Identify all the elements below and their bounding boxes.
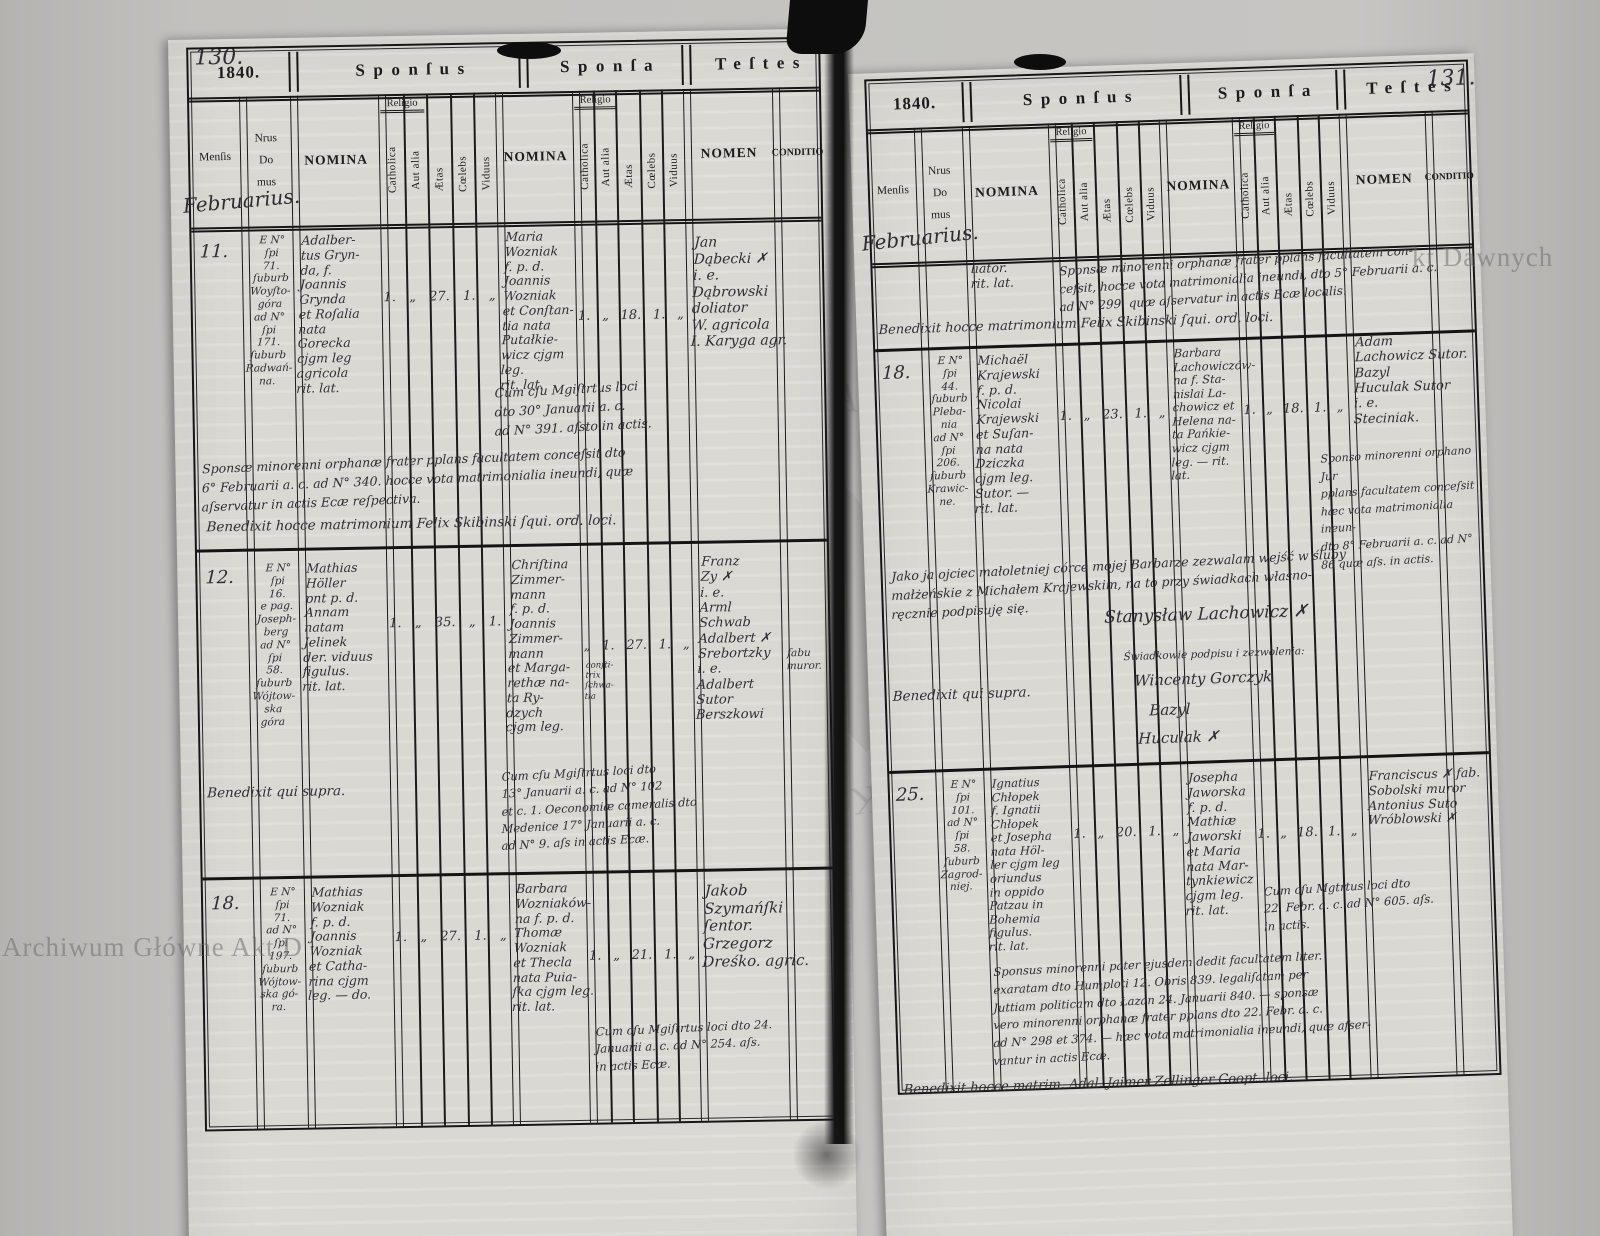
stat-autalia: „	[1266, 402, 1273, 417]
stat-autalia: „	[613, 948, 620, 963]
entry-number: 18.	[211, 893, 240, 915]
house-number: E N° ſpi 71. ſuburb Woyſto- góra ad N° ſ…	[245, 234, 294, 388]
conditio-value: fabu muror.	[786, 647, 827, 673]
sponsus-stats: 1.„27.1.„	[395, 928, 507, 945]
sponsa-name: Josepha Jaworska f. p. d. Mathiæ Jaworsk…	[1185, 769, 1264, 919]
section-sponsus: Sponſus	[967, 71, 1187, 126]
col-do: Do	[259, 150, 273, 172]
col-nomina-sponsus: NOMINA	[292, 94, 380, 225]
magistrate-consent-note: Cum cſu Mgiſtrtus loci dto 13° Januarii …	[502, 755, 762, 855]
stat-viduus: „	[688, 947, 695, 962]
section-testes: Teſtes	[1341, 61, 1476, 113]
benediction-note: Benedixit qui supra.	[207, 779, 438, 803]
stat-coelebs: 1.	[1328, 824, 1341, 839]
stat-autalia: „	[409, 290, 416, 305]
stat-autalia: 1.	[602, 638, 615, 653]
col-catholica-sponsa: Catholica	[1235, 143, 1257, 250]
entry-number: 11.	[199, 241, 228, 263]
section-sponsa: Sponſa	[1185, 66, 1343, 119]
col-nomina-sponsa: NOMINA	[1161, 117, 1236, 253]
col-viduus-sponsus: Viduus	[476, 126, 498, 220]
col-conditio: CONDITIO	[1427, 109, 1472, 244]
col-autalia-sponsus: Aut alia	[404, 118, 427, 222]
col-nrus: Nrus	[928, 161, 951, 184]
sponsus-name: Ignatius Chłopek f. Ignatii Chłopek et J…	[989, 775, 1072, 954]
stat-viduus: „	[1158, 406, 1165, 421]
col-coelebs-sponsus: Cœlebs	[1118, 156, 1141, 253]
table-body: liator. rit. lat. Sponsæ minorenni orpha…	[872, 243, 1499, 1092]
register-page-right: 131. 1840. Sponſus Sponſa Teſtes	[848, 53, 1514, 1236]
col-coelebs-sponsa: Cœlebs	[1299, 150, 1321, 247]
stat-viduus: „	[683, 637, 690, 652]
stat-aetas: 27.	[626, 638, 647, 653]
stat-coelebs: 1.	[659, 637, 672, 652]
year-label: 1840.	[188, 48, 289, 98]
col-do: Do	[933, 183, 948, 205]
stat-viduus: 1.	[489, 614, 502, 629]
col-mensis: Menſis	[190, 137, 241, 178]
col-viduus-sponsus: Viduus	[1140, 156, 1162, 253]
row-separator	[203, 867, 833, 880]
stat-catholica: 1.	[589, 949, 602, 964]
stat-autalia: „	[420, 930, 427, 945]
testes-names: Adam Lachowicz Sutor. Bazyl Huculak Suto…	[1354, 331, 1476, 427]
col-autalia-sponsa: Aut alia	[595, 114, 616, 218]
benediction-note: Benedixit hocce matrim. Adal. Jaimer Zel…	[904, 1063, 1444, 1100]
col-religio-sponsus: Religio	[380, 98, 424, 114]
sponsus-name: Mathias Höller pnt p. d. Annam natam Jel…	[302, 560, 391, 694]
stat-catholica: 1.	[1073, 827, 1086, 842]
col-coelebs-sponsus: Cœlebs	[452, 127, 475, 221]
magistrate-consent-note: Cum cſu Mgiſtrtus loci dto 30° Januarii …	[495, 372, 735, 441]
entry-number: 25.	[896, 784, 925, 806]
register-scan: ARCHIWUM GŁÓWNE AKT DAWNYCH • ARCHIWUM G…	[0, 0, 1600, 1236]
col-autalia-sponsus: Aut alia	[1073, 148, 1097, 255]
testes-names: Franz Zy ✗ i. e. Arml Schwab Adalbert ✗ …	[696, 553, 790, 723]
witness-signature: Bazyl	[1149, 701, 1190, 720]
spine-top-shadow	[785, 0, 868, 54]
witness-signature: Huculak ✗	[1138, 728, 1219, 748]
col-catholica-sponsa: Catholica	[574, 115, 595, 219]
testes-names: Franciscus ✗ fab. Sobolski muror Antoniu…	[1368, 765, 1491, 828]
stat-aetas: 27.	[440, 929, 461, 944]
sponsa-stats: 1.„21.1.„	[589, 947, 695, 964]
col-aetas-sponsa: Ætas	[618, 134, 640, 218]
stat-catholica: „	[584, 639, 591, 654]
stat-aetas: 23.	[1102, 407, 1123, 423]
col-viduus-sponsa: Viduus	[1321, 150, 1342, 247]
ink-blot	[497, 42, 561, 59]
col-conditio: CONDITIO	[774, 87, 821, 218]
register-page-left: 130. 1840. Sponſus Sponſa Teſtes	[168, 28, 858, 1236]
stat-coelebs: 1.	[474, 929, 487, 944]
witness-caption: Świadkowie podpisu i zezwolenia:	[1123, 645, 1304, 663]
col-religio-sponsus: Religio	[1050, 126, 1092, 142]
house-number: E N° ſpi 16. e pag. Joseph- berg ad N° ſ…	[251, 562, 301, 729]
sponsa-name: Barbara Wozniaków- na f. p. d. Thomæ Woz…	[512, 881, 599, 1015]
stat-aetas: 18.	[620, 308, 641, 323]
stat-aetas: 21.	[632, 948, 653, 963]
col-autalia-sponsa: Aut alia	[1254, 142, 1277, 249]
section-sponsus: Sponſus	[294, 44, 525, 96]
col-mensis: Menſis	[869, 170, 916, 212]
stat-aetas: 27.	[429, 289, 450, 304]
sponsa-name: Maria Wozniak f. p. d. Joannis Wozniak e…	[500, 229, 586, 393]
sponsus-stats: 1.„35.„1.	[389, 614, 501, 631]
stat-coelebs: 1.	[1134, 406, 1147, 421]
stat-coelebs: 1.	[664, 947, 677, 962]
stat-catholica: 1.	[395, 930, 408, 945]
stat-autalia: „	[1280, 826, 1287, 841]
col-aetas-sponsus: Ætas	[1095, 167, 1119, 254]
magistrate-consent-note: Cum cſu Mgiſtrtus loci dto 24. Januarii …	[596, 1013, 834, 1075]
book-spine-shadow	[824, 0, 854, 1144]
stat-aetas: 18.	[1297, 825, 1318, 841]
stat-coelebs: 1.	[653, 307, 666, 322]
stat-viduus: „	[677, 307, 684, 322]
table-frame: 1840. Sponſus Sponſa Teſtes Menſis	[186, 37, 839, 1132]
table-frame: 1840. Sponſus Sponſa Teſtes Menſis	[864, 59, 1501, 1094]
faculty-note: Sponsus minorenni pater ejusdem dedit fa…	[993, 938, 1498, 1071]
stat-aetas: 35.	[435, 615, 456, 630]
sponsus-name: Adalber- tus Gryn- da, f. Joannis Grynda…	[296, 232, 386, 396]
stat-viduus: „	[1172, 823, 1179, 838]
year-label: 1840.	[866, 78, 963, 129]
col-catholica-sponsus: Catholica	[380, 118, 404, 222]
col-viduus-sponsa: Viduus	[664, 123, 685, 217]
stat-coelebs: 1.	[1148, 824, 1161, 839]
sponsus-name: Mathias Wozniak f. p. d. Joannis Wozniak…	[308, 884, 396, 1004]
col-nomen: NOMEN	[685, 87, 773, 218]
stat-autalia: „	[1097, 826, 1104, 841]
sponsus-stats: 1.„27.1.„	[383, 288, 495, 305]
stat-autalia: „	[602, 308, 609, 323]
house-number: E N° ſpi 44. ſuburb Pleba- nia ad N° ſpi…	[926, 354, 971, 509]
stat-coelebs: „	[469, 615, 476, 630]
stat-viduus: „	[489, 288, 496, 303]
sponsus-name: Michaël Krajewski f. p. d. Nicolai Kraje…	[974, 351, 1057, 516]
stat-viduus: „	[1350, 824, 1357, 839]
sponsa-stats: „1.27.1.„	[584, 637, 690, 654]
spine-bottom-smudge	[792, 1120, 862, 1190]
stat-catholica: 1.	[389, 616, 402, 631]
stat-coelebs: 1.	[463, 289, 476, 304]
archive-watermark-text: kt Dawnych	[1412, 242, 1553, 273]
stat-viduus: „	[1336, 400, 1343, 415]
table-body: 11. E N° ſpi 71. ſuburb Woyſto- góra ad …	[191, 217, 837, 1130]
col-catholica-sponsus: Catholica	[1051, 149, 1075, 256]
stat-catholica: 1.	[383, 290, 396, 305]
stat-catholica: 1.	[1059, 409, 1072, 424]
stat-autalia: „	[1083, 408, 1090, 423]
row-separator	[197, 539, 827, 552]
col-aetas-sponsa: Ætas	[1277, 161, 1300, 248]
testes-names: Jan Dąbecki ✗ i. e. Dąbrowski doliator W…	[690, 233, 822, 351]
sponsa-side-note: conſti- trix ſchwa- tia	[585, 660, 622, 701]
testes-names: Jakob Szymańſki ſentor. Grzegorz Dreśko.…	[702, 881, 833, 972]
col-religio-sponsa: Religio	[1234, 120, 1274, 136]
sponsus-name-tail: liator. rit. lat.	[971, 259, 1052, 291]
col-nomen: NOMEN	[1341, 111, 1428, 248]
stat-catholica: 1.	[1257, 826, 1270, 841]
stat-catholica: 1.	[1243, 403, 1256, 418]
entry-number: 12.	[205, 567, 234, 589]
stat-autalia: „	[415, 616, 422, 631]
col-aetas-sponsus: Ætas	[428, 137, 451, 221]
house-number: E N° ſpi 101. ad N° ſpi 58. ſuburb Zagro…	[940, 778, 984, 895]
sponsa-name: Barbara Lachowiczów- na f. Sta- nislai L…	[1171, 345, 1250, 483]
stat-aetas: 18.	[1283, 401, 1304, 417]
stat-aetas: 20.	[1116, 825, 1137, 841]
stat-viduus: „	[500, 928, 507, 943]
sponsa-name: Chriſtina Zimmer- mann f. p. d. Joannis …	[506, 557, 592, 736]
col-coelebs-sponsa: Cœlebs	[642, 123, 663, 217]
stat-coelebs: 1.	[1314, 400, 1327, 415]
benediction-note: Benedixit qui supra.	[892, 680, 1092, 707]
archive-watermark-text: Archiwum Główne Akt D	[2, 932, 303, 963]
entry-number: 18.	[882, 362, 911, 384]
col-nomina-sponsa: NOMINA	[497, 91, 574, 222]
col-nrus: Nrus	[254, 128, 277, 150]
ink-blot	[1014, 54, 1066, 70]
stat-catholica: 1.	[578, 309, 591, 324]
col-religio-sponsa: Religio	[574, 94, 616, 110]
column-header-row: Menſis Nrus Do mus NOMINA Religio Cathol…	[189, 87, 821, 233]
sponsa-stats: 1.„18.1.„	[578, 307, 684, 324]
